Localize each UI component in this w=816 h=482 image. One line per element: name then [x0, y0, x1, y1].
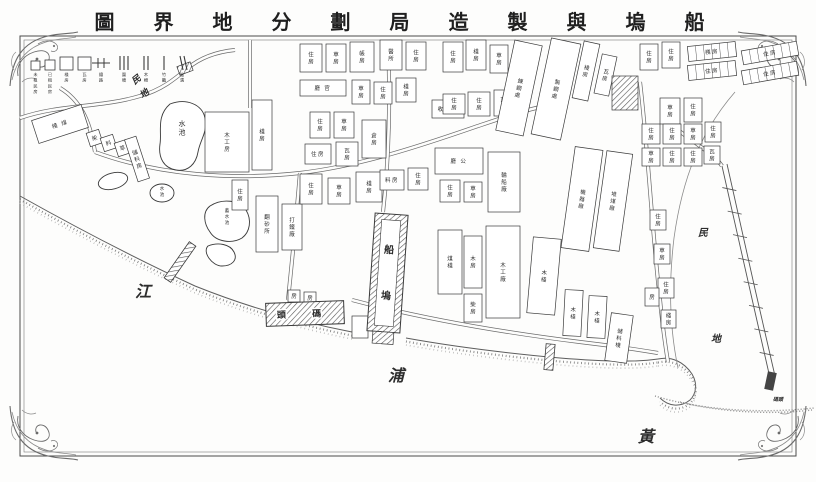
- building-label: 木工房: [224, 131, 230, 153]
- map-building: 住房: [406, 42, 426, 70]
- map-building: 木工廠: [486, 226, 520, 318]
- building-label: 棧房: [366, 180, 372, 195]
- building-label: 住房: [669, 150, 675, 165]
- map-building: 輪船廠: [488, 152, 520, 212]
- map-building: 醫所: [380, 40, 402, 70]
- map-building: 住房: [443, 42, 463, 72]
- map-building: 住房: [687, 61, 736, 81]
- pond-label: 蓄水池: [225, 207, 230, 225]
- map-building: 住房: [658, 278, 674, 298]
- small-pier: [544, 344, 555, 371]
- legend-line-label: 竹籬: [162, 71, 167, 84]
- map-building: 儲料棧: [605, 313, 633, 364]
- map-building: 翻砂所: [256, 196, 278, 252]
- building-label: 翻砂所: [264, 213, 270, 235]
- map-building: 住房: [662, 42, 680, 68]
- building-outline: [352, 316, 368, 338]
- map-building: 木棧: [563, 290, 583, 337]
- dock-label: 塢: [380, 289, 391, 303]
- building-label: 住房: [663, 281, 669, 296]
- pier-tick: [744, 282, 758, 285]
- legend-square-label: 瓦房: [82, 72, 86, 84]
- map-building: 住房: [741, 41, 799, 65]
- building-label: 住房: [476, 97, 482, 112]
- building-label: 棧房: [403, 83, 409, 98]
- legend-square: [60, 57, 73, 70]
- building-label: 住房: [451, 97, 457, 112]
- area-label: 民: [698, 227, 709, 239]
- map-building: 住房: [468, 92, 490, 116]
- legend-square: [31, 61, 40, 70]
- building-label: 住房: [668, 48, 674, 63]
- building-label: 棧房: [666, 312, 672, 327]
- map-building: 草房: [464, 182, 482, 202]
- map-building: 木棧: [527, 237, 562, 315]
- building-label: 草房: [648, 150, 654, 165]
- map-building: 住房: [300, 174, 322, 204]
- building-label: 住房: [447, 184, 453, 199]
- building-label: 草房: [667, 104, 673, 119]
- building-label: 木房: [470, 255, 476, 270]
- building-label: 帳房: [359, 50, 365, 65]
- pier-tick: [754, 329, 768, 332]
- map-building: 棧房: [661, 310, 676, 328]
- building-label: 住房: [646, 50, 652, 65]
- building-label: 住房: [380, 86, 386, 101]
- building-label: 棧房: [259, 128, 265, 143]
- pond: [206, 244, 235, 266]
- map-building: 草房: [490, 45, 508, 73]
- map-building: 棧房: [396, 78, 416, 102]
- map-building: 草房: [352, 80, 370, 104]
- building-label: 草房: [659, 247, 665, 262]
- map-building: 帳房: [350, 42, 374, 72]
- map-building: 草房: [334, 112, 354, 138]
- building-label: 木工廠: [500, 261, 506, 283]
- map-building: [612, 76, 638, 110]
- building-label: 住房: [413, 49, 419, 64]
- map-building: 房: [645, 288, 659, 306]
- wharf-label: 頭 碼: [277, 308, 334, 320]
- legend-line-label: 鐵路: [99, 71, 104, 84]
- area-label: 民: [130, 72, 144, 86]
- long-pier: [727, 164, 775, 376]
- map-building: 住房: [650, 210, 666, 230]
- map-building: 廳 公: [435, 148, 483, 174]
- map-building: 木工房: [205, 112, 249, 172]
- map-building: 棧房: [466, 40, 486, 70]
- area-label: 地: [711, 333, 723, 345]
- pier-tick: [738, 258, 752, 261]
- map-building: 棧房: [252, 100, 272, 170]
- map-building: 棧房: [687, 42, 736, 62]
- building-label: 住房: [311, 150, 325, 158]
- building-label: 柴房: [470, 301, 476, 316]
- legend-square: [78, 57, 91, 70]
- building-label: 打鐵廠: [289, 216, 295, 238]
- map-building: 廳 官: [300, 80, 346, 96]
- map-building: [352, 316, 368, 338]
- building-label: 房: [649, 293, 655, 301]
- map-building: 木棧: [587, 296, 607, 339]
- building-label: 住房: [308, 182, 314, 197]
- map-building: 住房: [663, 124, 681, 144]
- shoreline-layer: [20, 196, 814, 412]
- building-label: 草房: [336, 184, 342, 199]
- map-building: 住房: [443, 94, 465, 114]
- legend-square-label: 已租民房: [48, 72, 52, 95]
- map-building: 瓦房: [704, 146, 720, 164]
- map-building: 儲料房: [124, 136, 149, 182]
- dry-dock: 船塢: [366, 213, 408, 345]
- pond: [96, 169, 129, 192]
- pier-tip: [764, 371, 777, 390]
- map-building: 房: [288, 290, 300, 302]
- map-building: 木房: [464, 236, 482, 288]
- building-label: 草房: [690, 127, 696, 142]
- map-building: 草房: [328, 178, 350, 204]
- building-label: 住房: [237, 188, 243, 203]
- pier-tick: [728, 211, 742, 214]
- building-label: 草房: [470, 185, 476, 200]
- map-building: 打鐵廠: [282, 204, 302, 250]
- area-label: 碼頭: [773, 396, 784, 403]
- map-building: 住房: [232, 180, 248, 210]
- legend-square-label: 未租民房: [33, 71, 38, 95]
- building-label: 住房: [450, 50, 456, 65]
- building-label: 草房: [358, 85, 364, 100]
- map-page: 圖 界 地 分 劃 局 造 製 與 塢 船: [0, 0, 816, 482]
- map-building: 住房: [705, 122, 721, 142]
- dock-label: 船: [384, 243, 395, 257]
- map-building: 倉房: [362, 120, 386, 158]
- building-label: 草房: [333, 51, 339, 66]
- building-label: 倉房: [371, 132, 377, 147]
- building-label: 草房: [496, 52, 502, 67]
- building-label: 住房: [710, 125, 716, 140]
- building-label: 住房: [655, 213, 661, 228]
- building-label: 房: [307, 294, 313, 302]
- legend-line-label: 圍墻: [122, 72, 127, 84]
- long-pier: [722, 166, 770, 378]
- map-building: 草房: [684, 124, 702, 144]
- building-label: 棧房: [473, 48, 479, 63]
- map-building: 瓦房: [336, 142, 358, 166]
- map-building: 草房: [660, 98, 680, 124]
- map-building: 住房: [663, 148, 681, 166]
- map-building: 住房: [310, 112, 330, 138]
- water-label: 黃: [637, 428, 656, 446]
- map-building: 柴房: [464, 294, 482, 322]
- building-label: 煤棧: [447, 255, 453, 270]
- building-label: 廳 公: [451, 157, 468, 165]
- map-building: 住房: [440, 180, 460, 202]
- water-label: 浦: [388, 367, 407, 385]
- map-building: 住房: [374, 82, 392, 104]
- map-building: 草房: [326, 44, 346, 72]
- map-building: 住房: [640, 44, 658, 70]
- wharf: 頭 碼: [266, 301, 345, 327]
- building-outline: [612, 76, 638, 110]
- map-building: 煤棧: [438, 230, 462, 294]
- building-label: 草房: [341, 118, 347, 133]
- building-label: 料房: [385, 176, 399, 184]
- building-label: 住房: [690, 150, 696, 165]
- building-label: 住房: [317, 118, 323, 133]
- map-building: 住房: [408, 168, 428, 190]
- water-label: 江: [135, 283, 153, 301]
- pier-tick: [760, 352, 774, 355]
- building-label: 住房: [669, 127, 675, 142]
- building-label: 房: [291, 292, 297, 300]
- building-label: 廳 官: [315, 84, 332, 92]
- legend-line-label: 木柵: [144, 71, 149, 83]
- map-canvas: 水池水池蓄水池 棧 煤柴料草儲料房木工房棧房住房翻砂所打鐵廠住房草房帳房醫所住房…: [0, 0, 816, 482]
- small-pier: [164, 242, 196, 283]
- building-label: 住房: [415, 172, 421, 187]
- pond-label: 水池: [179, 119, 186, 137]
- building-label: 輪船廠: [501, 171, 507, 193]
- map-building: 住房: [642, 124, 660, 144]
- pier-tick: [733, 235, 747, 238]
- map-building: 料房: [380, 170, 404, 190]
- legend-square: [45, 60, 55, 70]
- map-building: 草房: [654, 244, 670, 264]
- building-label: 住房: [308, 51, 314, 66]
- map-building: 住房: [305, 144, 331, 164]
- map-building: 住房: [300, 44, 322, 72]
- map-building: 草房: [642, 148, 660, 166]
- building-label: 住房: [648, 127, 654, 142]
- map-building: 住房: [684, 148, 702, 166]
- dock-gate: [372, 331, 394, 344]
- legend-square-label: 棧房: [64, 71, 68, 84]
- map-building: 棧房: [356, 172, 382, 202]
- pier-tick: [749, 305, 763, 308]
- legend: 未租民房已租民房棧房瓦房鐵路圍墻木柵竹籬陰溝: [31, 56, 187, 95]
- building-label: 住房: [690, 103, 696, 118]
- pier-tick: [722, 188, 736, 191]
- map-building: 住房: [684, 98, 702, 122]
